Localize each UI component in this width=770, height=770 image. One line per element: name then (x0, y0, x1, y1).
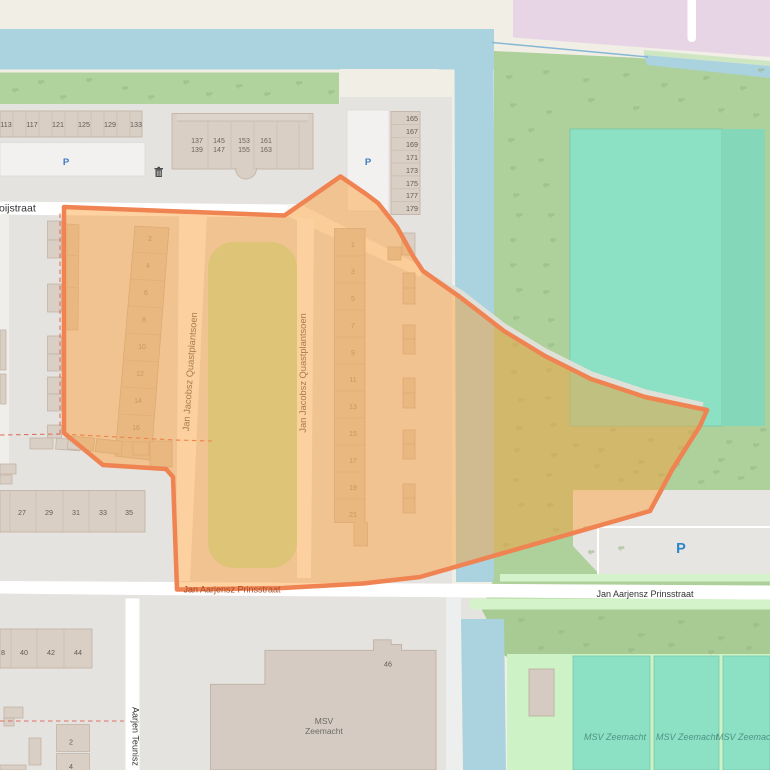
svg-text:oijstraat: oijstraat (0, 203, 36, 215)
svg-text:125: 125 (78, 120, 90, 129)
svg-text:163: 163 (260, 147, 272, 154)
svg-text:P: P (63, 157, 70, 168)
svg-text:155: 155 (238, 147, 250, 154)
svg-text:33: 33 (99, 508, 107, 517)
svg-text:42: 42 (47, 648, 55, 657)
svg-text:35: 35 (125, 508, 133, 517)
svg-text:113: 113 (0, 120, 11, 129)
svg-text:44: 44 (74, 648, 82, 657)
svg-text:139: 139 (191, 147, 203, 154)
svg-text:MSV Zeemacht: MSV Zeemacht (584, 732, 647, 742)
svg-text:171: 171 (406, 153, 418, 162)
svg-text:133: 133 (130, 120, 142, 129)
svg-text:177: 177 (406, 191, 418, 200)
svg-text:Jan Aarjensz Prinsstraat: Jan Aarjensz Prinsstraat (183, 585, 281, 595)
svg-text:129: 129 (104, 120, 116, 129)
svg-text:147: 147 (213, 147, 225, 154)
svg-text:175: 175 (406, 179, 418, 188)
svg-text:MSV: MSV (315, 716, 334, 726)
svg-text:Jan Aarjensz Prinsstraat: Jan Aarjensz Prinsstraat (596, 589, 694, 599)
svg-text:P: P (365, 157, 372, 168)
svg-text:Zeemacht: Zeemacht (305, 726, 343, 736)
svg-text:27: 27 (18, 508, 26, 517)
svg-text:169: 169 (406, 140, 418, 149)
svg-text:29: 29 (45, 508, 53, 517)
svg-text:117: 117 (26, 120, 37, 129)
svg-text:4: 4 (69, 762, 73, 770)
svg-text:153: 153 (238, 138, 250, 145)
svg-text:165: 165 (406, 114, 418, 123)
svg-text:161: 161 (260, 138, 272, 145)
svg-text:MSV Zeemacht: MSV Zeemacht (656, 732, 719, 742)
svg-text:121: 121 (52, 120, 64, 129)
svg-text:31: 31 (72, 508, 80, 517)
svg-text:8: 8 (1, 648, 5, 657)
svg-text:P: P (676, 541, 686, 557)
svg-text:173: 173 (406, 166, 418, 175)
svg-text:145: 145 (213, 138, 225, 145)
svg-text:40: 40 (20, 648, 28, 657)
svg-text:137: 137 (191, 138, 203, 145)
svg-text:Aarjen Teunisz: Aarjen Teunisz (131, 707, 141, 766)
svg-text:2: 2 (69, 738, 73, 747)
svg-text:179: 179 (406, 204, 418, 213)
svg-text:46: 46 (384, 660, 392, 669)
svg-text:MSV Zeemacht: MSV Zeemacht (716, 732, 770, 742)
svg-text:167: 167 (406, 127, 418, 136)
